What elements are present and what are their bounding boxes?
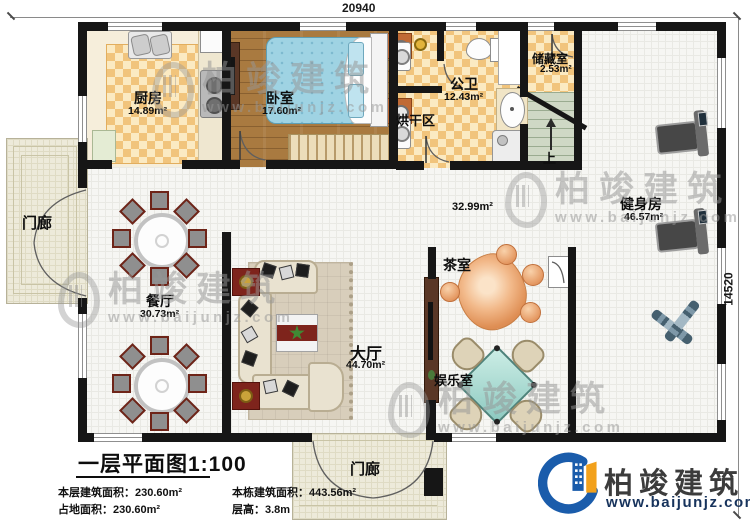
stat-floor-area: 本层建筑面积：230.60m² (58, 484, 182, 500)
stat-label: 本栋建筑面积： (232, 487, 309, 499)
label-stairs-up: 上 (543, 148, 556, 167)
plan-title: 一层平面图1:100 (78, 448, 247, 478)
stat-value: 230.60m² (135, 487, 182, 499)
floor-plan-canvas: 20940 14520 (0, 0, 750, 524)
area-hall: 44.70m² (346, 359, 385, 371)
area-storage: 2.53m² (540, 64, 572, 75)
dimension-right: 14520 (722, 272, 736, 305)
area-dining: 30.73m² (140, 308, 179, 320)
dimension-top: 20940 (342, 1, 375, 15)
label-game: 娱乐室 (434, 370, 473, 389)
area-bedroom: 17.60m² (262, 105, 301, 117)
stat-value: 3.8m (265, 504, 290, 516)
area-corridor: 32.99m² (452, 201, 493, 213)
dimension-right-line (738, 17, 739, 518)
stat-label: 占地面积： (58, 504, 113, 516)
stat-height: 层高：3.8m (232, 501, 290, 517)
stat-label: 本层建筑面积： (58, 487, 135, 499)
stat-land-area: 占地面积：230.60m² (58, 501, 160, 517)
label-porch-bottom: 门廊 (350, 458, 380, 479)
area-bathroom: 12.43m² (444, 91, 483, 103)
area-kitchen: 14.89m² (128, 105, 167, 117)
stat-value: 443.56m² (309, 487, 356, 499)
title-underline (76, 476, 210, 478)
brand-logo-icon (538, 452, 600, 521)
brand-url: www.baijunjz.com (606, 494, 750, 511)
dimension-top-line (10, 17, 738, 18)
label-tea: 茶室 (443, 255, 471, 275)
stat-building-area: 本栋建筑面积：443.56m² (232, 484, 356, 500)
door-arcs (0, 0, 750, 524)
stat-value: 230.60m² (113, 504, 160, 516)
label-porch-left: 门廊 (22, 212, 52, 233)
area-gym: 46.57m² (624, 211, 663, 223)
label-drying: 烘干区 (396, 110, 435, 129)
stat-label: 层高： (232, 504, 265, 516)
